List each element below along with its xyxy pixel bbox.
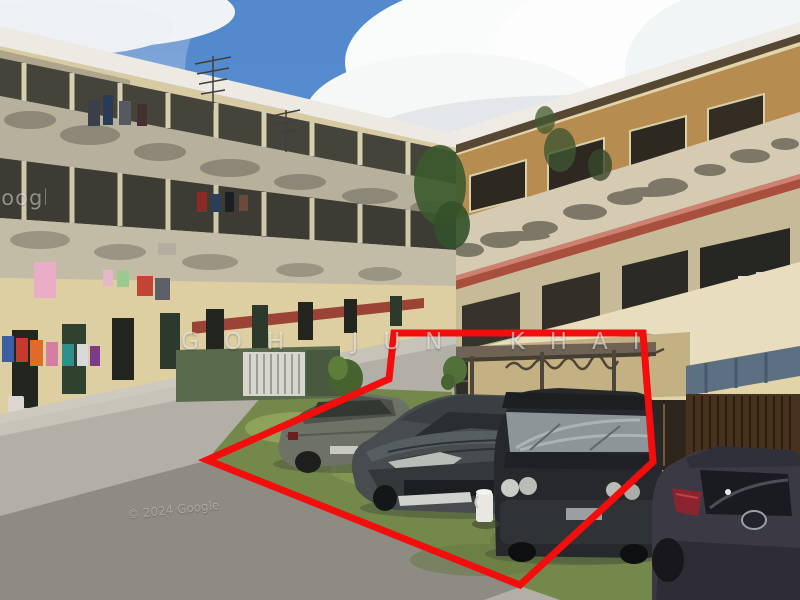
- photo-scene: [0, 0, 800, 600]
- dark-hatchback-car: [652, 446, 800, 600]
- aircon-unit: [158, 243, 176, 255]
- white-gate: [243, 352, 305, 396]
- street-view-photo: Google GOH JUN KHAI © 2024 Google: [0, 0, 800, 600]
